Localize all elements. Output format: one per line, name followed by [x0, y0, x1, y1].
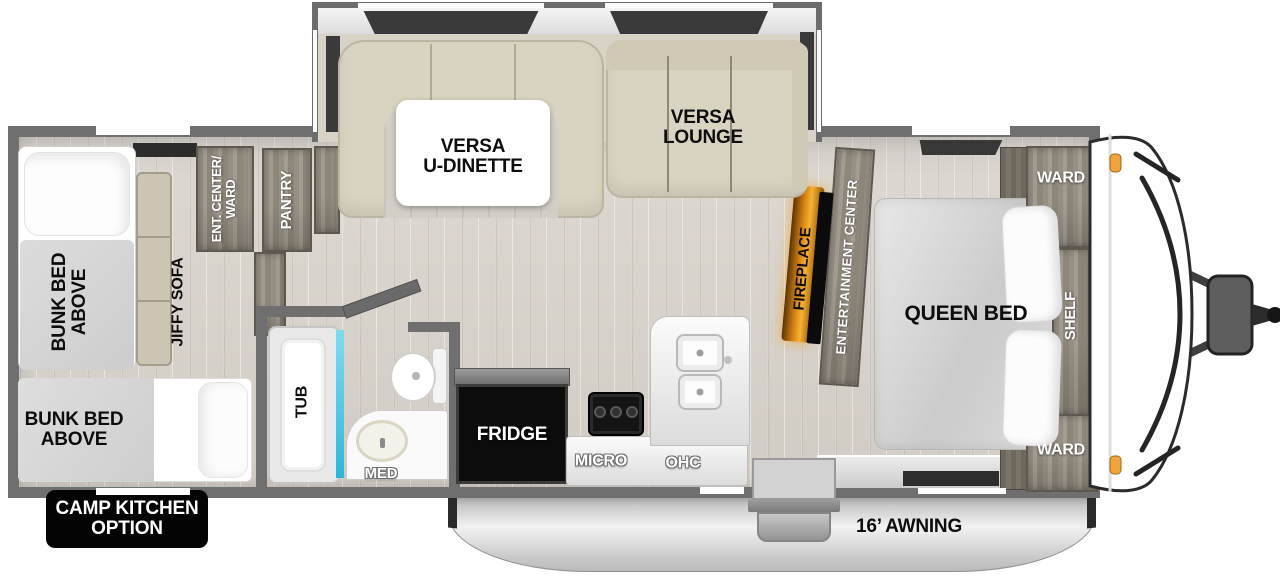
- propane-tank-cover: [1208, 276, 1252, 354]
- slideout-window-left-glass: [358, 11, 544, 34]
- jiffy-sofa-label: JIFFY SOFA: [171, 257, 188, 346]
- sink-basin-lower: [678, 374, 722, 410]
- cooktop-burner-2: [610, 406, 622, 418]
- queen-bed-pillow-bottom: [1002, 329, 1062, 447]
- lounge-back-cushion: [606, 40, 808, 70]
- versa-u-dinette-label: VERSA U-DINETTE: [423, 137, 523, 177]
- toilet-drain: [412, 372, 420, 380]
- slideout-window-tick-top-right: [605, 3, 773, 8]
- entry-step-bar: [748, 499, 840, 512]
- sink-faucet: [724, 356, 732, 364]
- versa-lounge-label: VERSA LOUNGE: [663, 108, 743, 148]
- marker-light-top: [1110, 154, 1121, 172]
- entry-door-marker: [918, 488, 1006, 494]
- vanity-faucet: [380, 438, 385, 448]
- med-cabinet-label: MED: [365, 466, 398, 482]
- ward-front-top-label: WARD: [1037, 171, 1085, 188]
- lounge-armrest: [792, 44, 808, 192]
- rear-baggage-door-marker: [96, 488, 190, 495]
- front-cap-and-hitch: [1080, 118, 1280, 510]
- sink-drain-lower: [697, 389, 704, 396]
- bunk-bed-top-label: BUNK BED ABOVE: [50, 253, 90, 352]
- fridge-label: FRIDGE: [477, 425, 548, 445]
- bath-wall-top: [256, 306, 348, 317]
- bedroom-window-shade: [916, 140, 1006, 155]
- bedroom-window-marker: [912, 126, 1010, 135]
- ward-front-bottom-label: WARD: [1037, 443, 1085, 460]
- bunk-bed-top-pillow: [24, 152, 130, 236]
- shelf-label: SHELF: [1063, 292, 1079, 340]
- bath-wall-left: [256, 306, 267, 490]
- rear-window-shade: [133, 143, 197, 157]
- slideout-window-right-glass: [605, 11, 773, 34]
- ent-center-ward-label: ENT. CENTER/ WARD: [210, 156, 238, 242]
- dinette-cushion-seam-left: [430, 44, 432, 104]
- slideout-end-cabinet: [314, 146, 340, 234]
- camp-kitchen-option-label: CAMP KITCHEN OPTION: [56, 499, 199, 539]
- jiffy-sofa-seam-1: [138, 236, 170, 238]
- micro-label: MICRO: [575, 454, 627, 471]
- jiffy-sofa-seam-2: [138, 300, 170, 302]
- slideout-window-tick-top-left: [358, 3, 544, 8]
- slideout-window-tick-right: [817, 30, 821, 132]
- jiffy-sofa: [136, 172, 172, 366]
- slideout-window-tick-left: [313, 30, 317, 132]
- entry-step-lower: [757, 512, 831, 542]
- bunk-bed-bottom-pillow: [198, 382, 248, 478]
- shower-glass: [336, 330, 344, 478]
- floorplan-canvas: 16’ AWNING CAMP KITCHEN OPTION VERSA U-D…: [0, 0, 1280, 579]
- entry-step-upper: [752, 458, 836, 500]
- marker-light-bottom: [1110, 456, 1121, 474]
- bedroom-lower-window-shade: [903, 471, 999, 486]
- sink-basin-upper: [676, 334, 724, 372]
- front-cap: [1090, 137, 1192, 491]
- cooktop-burner-1: [594, 406, 606, 418]
- pantry-label: PANTRY: [279, 171, 295, 230]
- queen-bed-label: QUEEN BED: [904, 303, 1027, 325]
- sink-drain-upper: [697, 350, 704, 357]
- bunk-bed-bottom-label: BUNK BED ABOVE: [25, 410, 124, 450]
- dinette-cushion-seam-right: [514, 44, 516, 104]
- cooktop-burner-3: [626, 406, 638, 418]
- awning-label: 16’ AWNING: [856, 517, 962, 537]
- rear-window-marker: [96, 126, 190, 135]
- ohc-label: OHC: [666, 456, 701, 473]
- kitchen-door-marker: [700, 487, 744, 494]
- tub-label: TUB: [295, 386, 312, 418]
